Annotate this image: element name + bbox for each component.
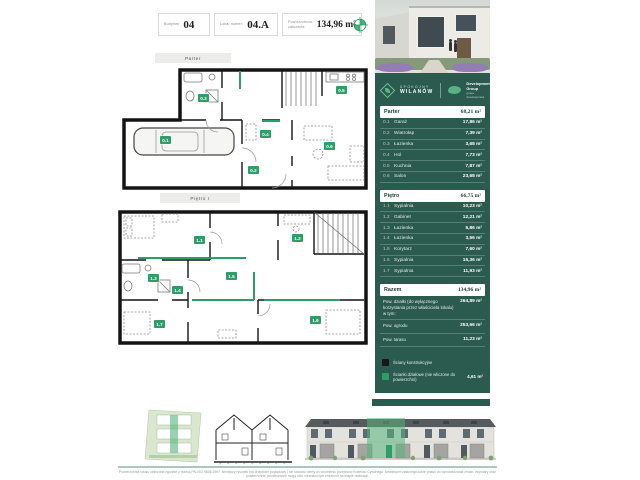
table-row: 0.2 Wiatrołap 7,39 m² (380, 129, 485, 140)
unit-number-box: Lokal numer: 04.A (214, 13, 278, 36)
person-silhouette (449, 42, 452, 51)
person-silhouette (454, 43, 457, 52)
total-area-label: Powierzchnia całkowita (288, 20, 313, 28)
parter-plan-label: Parter (155, 53, 231, 63)
room-number-badge: 0.6 (324, 142, 335, 150)
room-number-badge: 1.3 (148, 274, 159, 282)
room-number-badge: 1.4 (172, 286, 183, 294)
leaf-logo-icon (380, 82, 396, 98)
footer-rule (118, 466, 497, 468)
total-area-box: Powierzchnia całkowita 134,96 m² (282, 13, 362, 36)
legend-item: Ściany konstrukcyjne (380, 357, 485, 369)
room-number-badge: 1.7 (154, 320, 165, 328)
building-box: Budynek 04 (158, 13, 210, 36)
table-row: 1.1 Sypialnia 10,23 m² (380, 202, 485, 213)
room-number-badge: 0.5 (336, 86, 347, 94)
photo-lavender (377, 63, 413, 72)
room-number-badge: 1.6 (310, 316, 321, 324)
table-row: 0.6 Salon 23,68 m² (380, 172, 485, 183)
legend-item: Ścianki działowe (nie wliczone do powier… (380, 369, 485, 385)
room-number-badge: 1.2 (292, 234, 303, 242)
unit-card-page: Budynek 04 Lokal numer: 04.A Powierzchni… (0, 0, 640, 480)
photo-lavender (452, 63, 488, 72)
table-row: 0.5 Kuchnia 7,87 m² (380, 161, 485, 172)
estate-logo: SPOKOJNY WILANÓW (400, 85, 433, 95)
table-row: Pow. tarasu 11,23 m² (380, 334, 485, 347)
room-number-badge: 0.1 (160, 136, 171, 144)
table-row: 0.4 Hol 7,73 m² (380, 150, 485, 161)
photo-house-main (409, 6, 490, 62)
room-table-pietro: 1.1 Sypialnia 10,23 m² 1.2 Gabinet 12,21… (380, 202, 485, 277)
disclaimer-text: Powierzchnia lokalu obliczona zgodnie z … (118, 470, 497, 479)
site-plan-thumbnail (143, 407, 205, 465)
table-row: 1.6 Sypialnia 15,36 m² (380, 256, 485, 267)
pietro-badges: 1.11.21.31.41.51.61.7 (118, 210, 368, 345)
table-row: Pow. działki (do wyłącznego korzystania … (380, 296, 485, 320)
building-photo (375, 0, 490, 73)
brand-row: SPOKOJNY WILANÓW Development Group grupa… (380, 78, 485, 102)
building-value: 04 (183, 19, 194, 31)
area-summary-panel: SPOKOJNY WILANÓW Development Group grupa… (375, 73, 490, 393)
parter-floor-plan: 0.10.20.30.40.50.6 (122, 68, 368, 190)
parter-badges: 0.10.20.30.40.50.6 (122, 68, 368, 190)
table-row: 0.1 Garaż 17,86 m² (380, 118, 485, 129)
table-row: 1.4 Łazienka 3,56 m² (380, 234, 485, 245)
table-row: Pow. ogrodu 253,66 m² (380, 320, 485, 333)
section-drawing (212, 410, 294, 465)
table-row: 0.3 Łazienka 3,68 m² (380, 140, 485, 151)
table-row: 1.2 Gabinet 12,21 m² (380, 212, 485, 223)
extras-table: Pow. działki (do wyłącznego korzystania … (380, 296, 485, 347)
developer-logo: Development Group grupa deweloperska (466, 81, 490, 99)
floor-header-pietro: Piętro 66,75 m² (380, 190, 485, 202)
table-row: 1.3 Łazienka 5,86 m² (380, 223, 485, 234)
elevation-drawing (303, 412, 498, 464)
photo-house-side (375, 12, 411, 58)
table-row: 1.7 Sypialnia 11,93 m² (380, 266, 485, 277)
legend: Ściany konstrukcyjne Ścianki działowe (n… (380, 357, 485, 385)
legend-swatch (382, 359, 389, 366)
developer-logo-icon (448, 86, 461, 94)
footer-accent-bar (372, 399, 490, 406)
building-label: Budynek (164, 22, 179, 26)
table-row: 1.5 Korytarz 7,60 m² (380, 245, 485, 256)
unit-label: Lokal numer: (220, 22, 243, 26)
floor-header-parter: Parter 68,21 m² (380, 106, 485, 118)
pietro-floor-plan: 1.11.21.31.41.51.61.7 (118, 210, 368, 345)
room-number-badge: 1.1 (194, 236, 205, 244)
pietro-plan-label: Piętro I (160, 193, 240, 203)
room-number-badge: 1.5 (226, 272, 237, 280)
logo-divider (440, 83, 441, 98)
room-table-parter: 0.1 Garaż 17,86 m² 0.2 Wiatrołap 7,39 m²… (380, 118, 485, 183)
room-number-badge: 0.3 (198, 94, 209, 102)
room-number-badge: 0.4 (260, 130, 271, 138)
room-number-badge: 0.2 (248, 166, 259, 174)
unit-value: 04.A (247, 19, 269, 31)
total-header: Razem 134,96 m² (380, 284, 485, 296)
compass-icon (351, 16, 369, 34)
legend-swatch (382, 373, 389, 380)
